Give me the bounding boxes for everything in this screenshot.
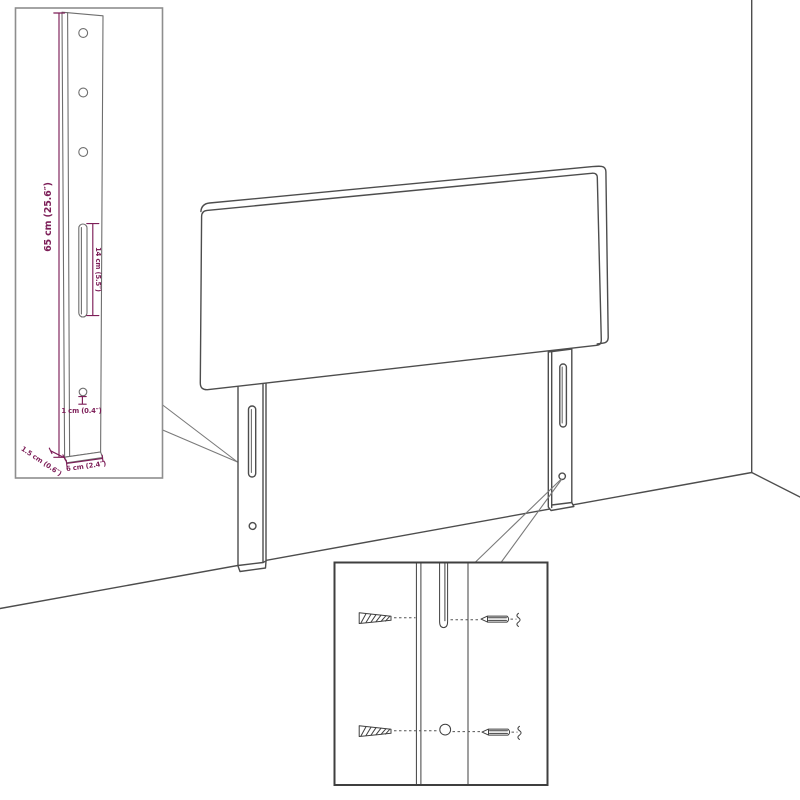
leg-detail-drawing: [62, 12, 103, 463]
leader-lines-right-inset: [475, 480, 562, 563]
dimension-label-hole: 1 cm (0.4″): [61, 407, 101, 415]
right-leg-screw-hole: [559, 473, 565, 479]
headboard-panel: [200, 166, 608, 389]
hardware-inset-frame: [335, 563, 548, 786]
left-leg-screw-hole: [249, 523, 256, 530]
right-mounting-leg: [548, 349, 574, 511]
right-leg-slot: [560, 364, 567, 427]
leader-lines-left-inset: [163, 405, 238, 462]
headboard-assembly-diagram: 65 cm (25.6″) 14 cm (5.5″) 1 cm (0.4″) 1…: [0, 0, 800, 800]
leg-hole-top: [79, 29, 88, 38]
leg-hole-middle: [79, 88, 88, 97]
panel-front-face: [200, 173, 601, 389]
hardware-detail-inset: [335, 563, 548, 786]
left-leg-slot: [249, 406, 256, 477]
leg-small-hole: [79, 388, 87, 396]
leg-hole-lower: [79, 148, 88, 157]
headboard: [200, 166, 608, 571]
dimension-label-slot-length: 14 cm (5.5″): [94, 247, 102, 292]
left-mounting-leg: [238, 381, 266, 572]
floor-line-right: [752, 473, 800, 498]
leg-slot: [79, 224, 87, 317]
dimension-label-leg-height: 65 cm (25.6″): [43, 182, 54, 252]
leg-detail-inset: 65 cm (25.6″) 14 cm (5.5″) 1 cm (0.4″) 1…: [16, 8, 163, 478]
assembly-diagram-canvas: 65 cm (25.6″) 14 cm (5.5″) 1 cm (0.4″) 1…: [0, 0, 800, 800]
